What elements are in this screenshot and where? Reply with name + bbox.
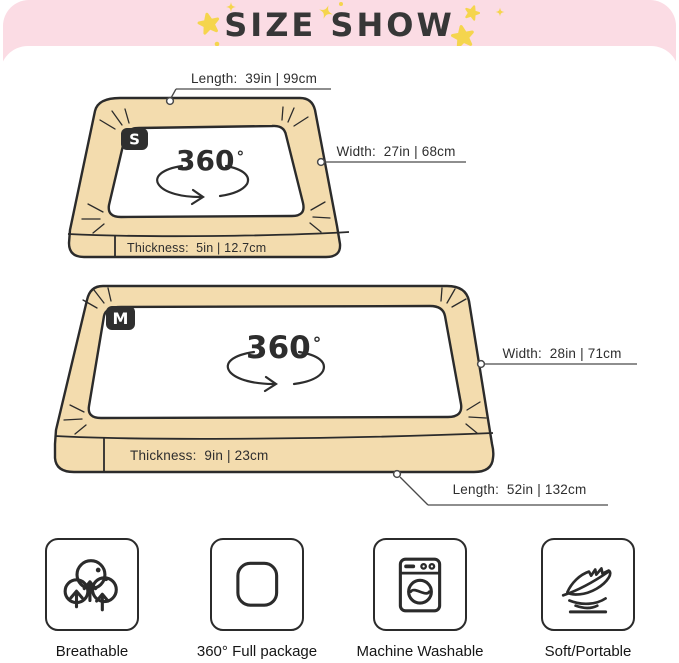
- length-label-small: Length: 39in | 99cm: [176, 71, 332, 86]
- width-label-small: Width: 27in | 68cm: [326, 144, 466, 159]
- full-package-icon: [226, 554, 288, 616]
- feature-card: [373, 538, 467, 631]
- length-label-medium: Length: 52in | 132cm: [432, 482, 607, 497]
- feature-label: Breathable: [56, 643, 129, 660]
- rotation-360-label-medium: 360°: [246, 333, 319, 364]
- page-title: SIZE SHOW: [3, 6, 676, 44]
- machine-washable-icon: [389, 554, 451, 616]
- rotation-360-label-small: 360°: [176, 147, 242, 175]
- feature-label: Machine Washable: [356, 643, 483, 660]
- feature-label: Soft/Portable: [545, 643, 632, 660]
- feature-label: 360° Full package: [197, 643, 317, 660]
- feather-icon: [557, 554, 619, 616]
- feature-card: [210, 538, 304, 631]
- rotation-value: 360: [246, 330, 311, 366]
- thickness-label-small: Thickness: 5in | 12.7cm: [127, 241, 266, 255]
- feature-card: [541, 538, 635, 631]
- breathable-icon: [61, 554, 123, 616]
- feature-full-package: 360° Full package: [172, 538, 342, 660]
- feature-breathable: Breathable: [7, 538, 177, 660]
- rotation-value: 360: [176, 144, 234, 177]
- width-label-medium: Width: 28in | 71cm: [488, 346, 636, 361]
- feature-soft-portable: Soft/Portable: [503, 538, 673, 660]
- degree-symbol: °: [313, 334, 322, 354]
- degree-symbol: °: [236, 148, 244, 166]
- feature-card: [45, 538, 139, 631]
- size-show-infographic: SIZE SHOW S: [0, 0, 679, 663]
- thickness-label-medium: Thickness: 9in | 23cm: [130, 448, 268, 463]
- feature-machine-washable: Machine Washable: [335, 538, 505, 660]
